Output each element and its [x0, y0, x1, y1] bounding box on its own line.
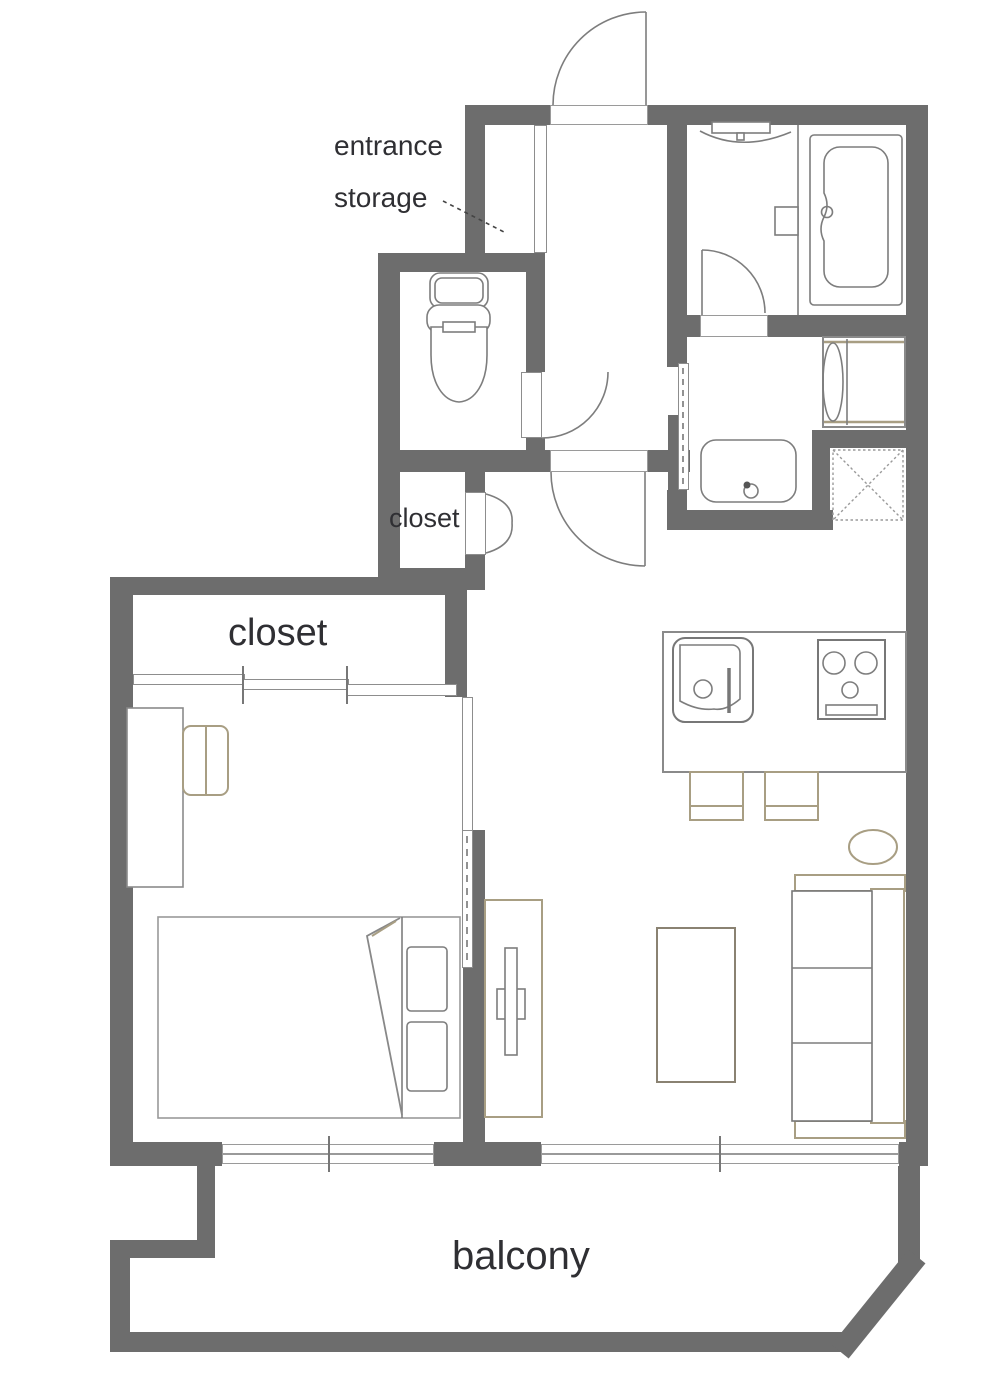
bifold-closet-door: [486, 494, 512, 553]
entrance-storage-label-line1: entrance: [334, 132, 443, 160]
large-closet-label: closet: [228, 614, 327, 652]
bed: [158, 917, 460, 1118]
refrigerator-space: [833, 450, 903, 520]
desk-chair: [183, 726, 228, 795]
fixtures-layer: [0, 0, 1000, 1386]
stove: [818, 640, 885, 719]
small-closet-label: closet: [389, 505, 460, 532]
shower: [700, 122, 791, 142]
floor-plan: entrance storage closet closet balcony: [0, 0, 1000, 1386]
ldk-door: [551, 472, 645, 566]
dining-chairs: [690, 772, 818, 820]
washing-machine: [823, 337, 905, 427]
tv-board: [485, 900, 542, 1117]
toilet-door: [542, 372, 608, 438]
balcony-label: balcony: [452, 1236, 590, 1276]
entrance-storage-label-line2: storage: [334, 184, 427, 212]
bath-divider-stub: [775, 207, 798, 235]
coffee-table: [657, 928, 735, 1082]
kitchen-sink: [673, 638, 753, 722]
desk: [127, 708, 183, 887]
wall-balcony-chamfer: [847, 1265, 910, 1343]
sofa: [792, 875, 905, 1138]
toilet: [427, 273, 490, 402]
bathtub: [810, 135, 902, 305]
stool-cushion: [849, 830, 897, 864]
bathroom-door: [702, 250, 765, 315]
storage-leader-line: [443, 201, 506, 233]
entrance-door: [553, 12, 646, 105]
washbasin: [701, 440, 796, 502]
